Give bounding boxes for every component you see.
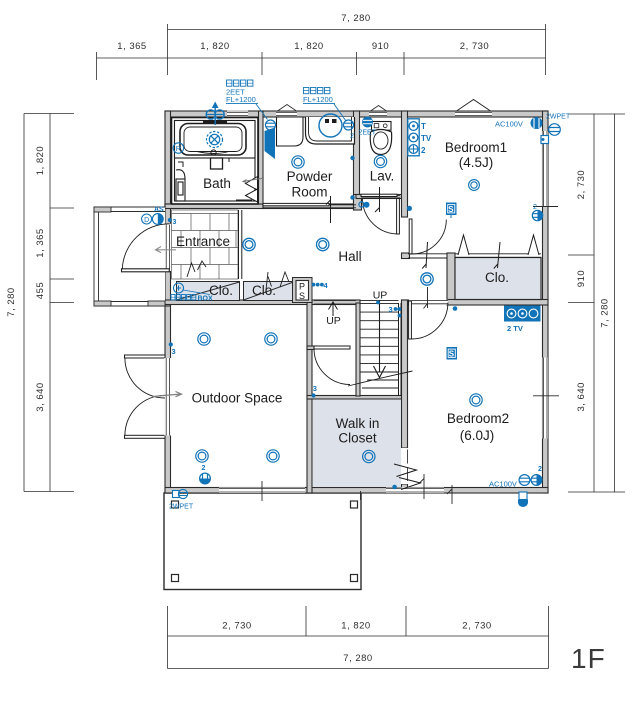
svg-text:Closet: Closet xyxy=(338,431,377,446)
svg-text:FL+1200: FL+1200 xyxy=(303,95,333,104)
svg-text:2: 2 xyxy=(202,465,206,472)
svg-text:(4.5J): (4.5J) xyxy=(459,155,494,170)
svg-text:1, 820: 1, 820 xyxy=(35,146,46,175)
svg-text:S: S xyxy=(299,291,305,301)
svg-text:7, 280: 7, 280 xyxy=(600,298,611,327)
svg-text:S: S xyxy=(449,350,455,359)
svg-text:3: 3 xyxy=(173,219,177,226)
svg-text:Room: Room xyxy=(291,185,327,200)
svg-text:455: 455 xyxy=(35,282,46,299)
svg-text:3: 3 xyxy=(389,305,393,314)
svg-text:3, 640: 3, 640 xyxy=(35,382,46,411)
svg-text:1, 820: 1, 820 xyxy=(341,621,370,632)
svg-text:S: S xyxy=(448,205,454,214)
svg-text:Bedroom2: Bedroom2 xyxy=(447,411,509,426)
svg-text:1, 820: 1, 820 xyxy=(200,41,229,52)
svg-text:2 TV: 2 TV xyxy=(507,324,523,333)
svg-text:7, 280: 7, 280 xyxy=(341,13,370,24)
svg-text:3: 3 xyxy=(172,347,176,356)
svg-text:7, 280: 7, 280 xyxy=(343,653,372,664)
svg-text:AS: AS xyxy=(154,207,164,214)
svg-text:Clo.: Clo. xyxy=(485,270,509,285)
svg-text:Walk in: Walk in xyxy=(336,416,380,431)
svg-text:UP: UP xyxy=(326,315,341,327)
svg-text:2, 730: 2, 730 xyxy=(576,170,587,199)
svg-text:2, 730: 2, 730 xyxy=(222,621,251,632)
svg-text:1F: 1F xyxy=(571,643,606,674)
svg-text:Lav.: Lav. xyxy=(370,169,395,184)
svg-text:3, 640: 3, 640 xyxy=(576,382,587,411)
svg-text:1, 365: 1, 365 xyxy=(35,228,46,257)
svg-text:910: 910 xyxy=(576,270,587,287)
svg-text:3: 3 xyxy=(313,384,317,393)
svg-text:P: P xyxy=(299,282,305,292)
svg-text:AC100V: AC100V xyxy=(489,480,517,489)
svg-text:BOX: BOX xyxy=(198,296,214,303)
svg-text:1, 820: 1, 820 xyxy=(294,41,323,52)
svg-text:Powder: Powder xyxy=(287,169,333,184)
svg-text:Bedroom1: Bedroom1 xyxy=(445,140,507,155)
svg-text:Clo.: Clo. xyxy=(252,283,276,298)
svg-text:2WPET: 2WPET xyxy=(546,114,571,121)
svg-text:7, 280: 7, 280 xyxy=(6,287,17,316)
svg-text:Entrance: Entrance xyxy=(176,234,230,249)
svg-text:Outdoor Space: Outdoor Space xyxy=(192,391,283,406)
svg-text:1, 365: 1, 365 xyxy=(117,41,146,52)
svg-text:2, 730: 2, 730 xyxy=(462,621,491,632)
svg-text:2: 2 xyxy=(350,133,354,140)
svg-text:910: 910 xyxy=(372,41,389,52)
svg-text:(6.0J): (6.0J) xyxy=(460,428,495,443)
svg-text:Hall: Hall xyxy=(338,249,361,264)
svg-text:2: 2 xyxy=(421,146,426,155)
svg-text:T: T xyxy=(421,122,426,131)
svg-text:TV: TV xyxy=(421,134,432,143)
svg-text:R: R xyxy=(176,144,182,153)
svg-text:Bath: Bath xyxy=(203,176,231,191)
svg-text:2EET: 2EET xyxy=(359,130,377,137)
svg-text:2: 2 xyxy=(538,466,542,473)
svg-text:AC100V: AC100V xyxy=(495,120,523,129)
svg-text:2WPET: 2WPET xyxy=(169,504,194,511)
svg-text:FL+1200: FL+1200 xyxy=(226,95,256,104)
svg-text:2, 730: 2, 730 xyxy=(460,41,489,52)
svg-text:D: D xyxy=(144,217,149,224)
